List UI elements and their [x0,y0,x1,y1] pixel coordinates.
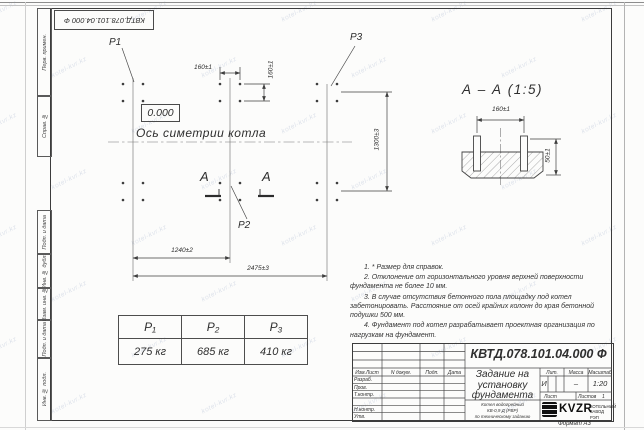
tb-mass-label: Масса [564,370,588,376]
note-3: 3. В случае отсутствия бетонного пола пл… [350,293,613,321]
dim-1240: 1240±2 [162,247,202,254]
doc-number: КВТД.078.101.04.000 Ф [467,347,610,361]
dim-160-vertical: 160±1 [268,53,275,87]
kvzr-company-name: КОТЕЛЬНЫЙ ЗАВОД РЭП [590,404,613,420]
subtitle-line-3: по техническому заданию [465,414,540,420]
elevation-mark-box: 0.000 [141,104,180,122]
tb-row-utv: Утв. [354,414,365,420]
tb-scale-label: Масштаб [588,370,612,376]
elevation-value: 0.000 [147,107,173,119]
tb-row-prov: Пров. [354,385,367,391]
section-letter-right: А [262,169,271,184]
tb-header-n-dokum: N докум. [382,370,420,376]
loads-header-p2: P₂ [182,316,245,339]
tb-sheets-value: 1 [602,394,605,400]
drawing-subtitle: Котел водогрейный КВ-0,9 Д (РВР) по техн… [465,402,540,420]
section-letter-left: А [200,169,209,184]
section-dim-160: 160±1 [485,106,517,113]
anchor-bolt-right [521,136,528,171]
anchor-bolt-left [474,136,481,171]
tb-scale-value: 1:20 [588,379,612,388]
tb-row-tkontr: Т.контр. [354,392,374,398]
loads-table-header-row: P₁ P₂ P₃ [119,316,308,339]
loads-header-p3: P₃ [245,316,308,339]
note-2: 2. Отклонение от горизонтального уровня … [350,273,613,291]
loads-table-value-row: 275 кг 685 кг 410 кг [119,339,308,365]
loads-table: P₁ P₂ P₃ 275 кг 685 кг 410 кг [118,315,308,365]
load-label-p1: P1 [109,37,121,48]
load-label-p3: P3 [350,32,362,43]
tb-lit-value: И [540,379,548,388]
format-label: Формат А3 [558,421,591,427]
section-view-title: А – А (1:5) [462,82,543,97]
note-1: 1. * Размер для справок. [350,263,613,272]
tb-mass-value: – [564,379,588,388]
tb-row-nkontr: Н.контр. [354,407,375,413]
section-dim-50: 50±1 [545,141,552,171]
section-cut-marks [205,189,274,196]
load-label-p2: P2 [238,220,250,231]
loads-value-p1: 275 кг [119,339,182,365]
tb-row-razrab: Разраб. [354,377,372,383]
loads-header-p1: P₁ [119,316,182,339]
tb-header-izm-list: Изм.Лист [352,370,382,376]
drawing-title: Задание на установку фундамента [465,370,540,402]
drawing-sheet: kotel-kvr.kzkotel-kvr.kzkotel-kvr.kzkote… [0,0,644,430]
note-4: 4. Фундамент под котел разрабатывает про… [350,321,613,339]
loads-value-p3: 410 кг [245,339,308,365]
tb-sheet-label: Лист [544,394,557,400]
kvzr-logo-text: KVZR [559,403,592,415]
tb-lit-label: Лит. [540,370,564,376]
symmetry-axis-label: Ось симетрии котла [136,126,266,140]
dim-1300: 1300±3 [374,120,381,160]
loads-value-p2: 685 кг [182,339,245,365]
dim-160-horizontal: 160±1 [188,64,218,71]
tb-sheets-label: Листов [578,394,596,400]
tb-header-podp: Подп. [420,370,444,376]
notes-block: 1. * Размер для справок. 2. Отклонение о… [350,263,613,341]
kvzr-logo-icon [542,402,557,417]
tb-header-data: Дата [444,370,465,376]
dim-2475: 2475±3 [237,265,279,272]
